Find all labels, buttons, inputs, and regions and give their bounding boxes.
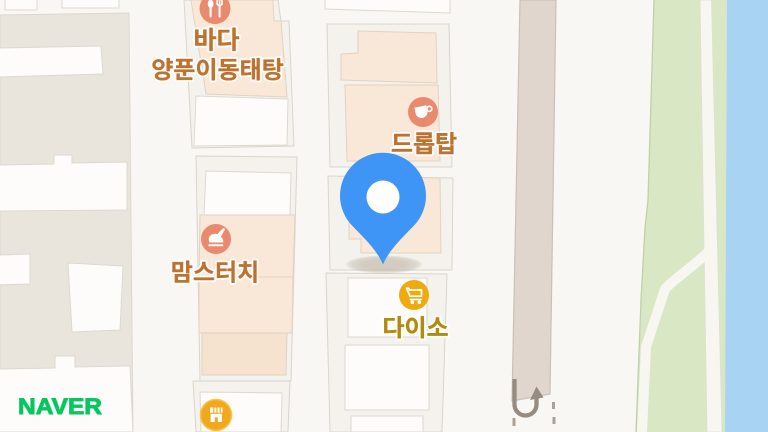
svg-text:NAVER: NAVER — [18, 394, 102, 419]
